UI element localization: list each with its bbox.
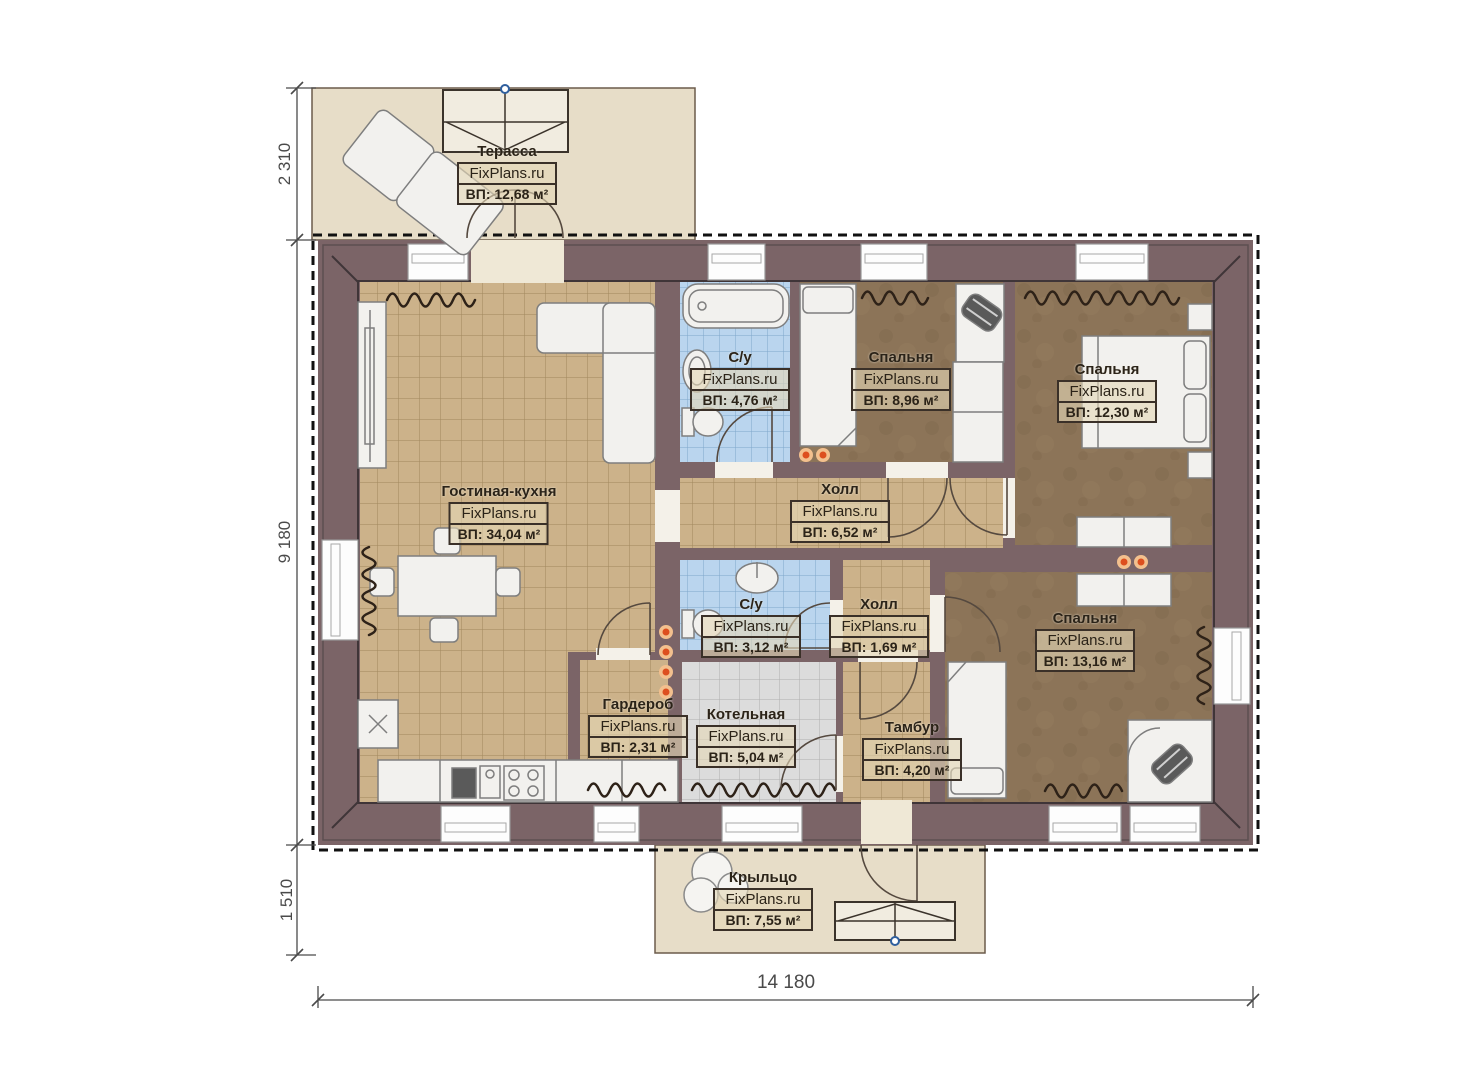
sink-2 (736, 562, 778, 593)
watermark: FixPlans.ru (853, 370, 949, 391)
label-boiler-room: Котельная FixPlans.ru ВП: 5,04 м² (696, 706, 796, 768)
window-kitchen-bottom (441, 806, 510, 842)
watermark: FixPlans.ru (698, 727, 794, 748)
toilet-1 (682, 408, 723, 436)
wardrobe-1 (953, 362, 1003, 462)
wardrobe-2 (1077, 517, 1171, 547)
window-bedroom-3-bottom-2 (1130, 806, 1200, 842)
label-hall-1: Холл FixPlans.ru ВП: 6,52 м² (790, 481, 890, 543)
label-hall-2: Холл FixPlans.ru ВП: 1,69 м² (829, 596, 929, 658)
watermark: FixPlans.ru (459, 164, 555, 185)
window-bedroom-3-bottom (1049, 806, 1121, 842)
label-bathroom-2: С/у FixPlans.ru ВП: 3,12 м² (701, 596, 801, 658)
label-porch: Крыльцо FixPlans.ru ВП: 7,55 м² (713, 869, 813, 931)
label-bedroom-2: Спальня FixPlans.ru ВП: 12,30 м² (1057, 361, 1157, 423)
watermark: FixPlans.ru (792, 502, 888, 523)
watermark: FixPlans.ru (703, 617, 799, 638)
label-terrace: Терасса FixPlans.ru ВП: 12,68 м² (457, 143, 557, 205)
watermark: FixPlans.ru (451, 504, 547, 525)
dish-rack (452, 768, 476, 798)
label-vestibule: Тамбур FixPlans.ru ВП: 4,20 м² (862, 719, 962, 781)
dimension-total-width: 14 180 (716, 972, 856, 994)
watermark: FixPlans.ru (692, 370, 788, 391)
bed-single-1 (800, 284, 856, 446)
watermark: FixPlans.ru (1059, 382, 1155, 403)
label-bedroom-1: Спальня FixPlans.ru ВП: 8,96 м² (851, 349, 951, 411)
label-wardrobe: Гардероб FixPlans.ru ВП: 2,31 м² (588, 696, 688, 758)
watermark: FixPlans.ru (715, 890, 811, 911)
dimension-house-depth: 9 180 (275, 502, 295, 582)
dimension-porch-depth: 1 510 (277, 860, 297, 940)
kitchen-counter (378, 760, 678, 802)
watermark: FixPlans.ru (831, 617, 927, 638)
kitchen-sink (480, 766, 500, 798)
nightstand-bottom (1188, 452, 1212, 478)
label-bedroom-3: Спальня FixPlans.ru ВП: 13,16 м² (1035, 610, 1135, 672)
watermark: FixPlans.ru (864, 740, 960, 761)
watermark: FixPlans.ru (590, 717, 686, 738)
window-bedroom-1-top (861, 244, 927, 280)
bathtub (683, 284, 789, 328)
porch-stairs-symbol (835, 902, 955, 945)
window-bathroom-1-top (708, 244, 765, 280)
label-living-kitchen: Гостиная-кухня FixPlans.ru ВП: 34,04 м² (442, 483, 557, 545)
window-living-bottom-small (594, 806, 639, 842)
window-bedroom-2-top (1076, 244, 1148, 280)
fridge (358, 700, 398, 748)
watermark: FixPlans.ru (1037, 631, 1133, 652)
window-boiler-bottom (722, 806, 802, 842)
wardrobe-3 (1077, 574, 1171, 606)
label-bathroom-1: С/у FixPlans.ru ВП: 4,76 м² (690, 349, 790, 411)
dimension-terrace-depth: 2 310 (275, 124, 295, 204)
terrace-window-symbol (443, 85, 568, 152)
floor-plan-page: 2 310 9 180 1 510 14 180 Терасса FixPlan… (0, 0, 1473, 1080)
nightstand-top (1188, 304, 1212, 330)
tv-panel (358, 302, 386, 468)
